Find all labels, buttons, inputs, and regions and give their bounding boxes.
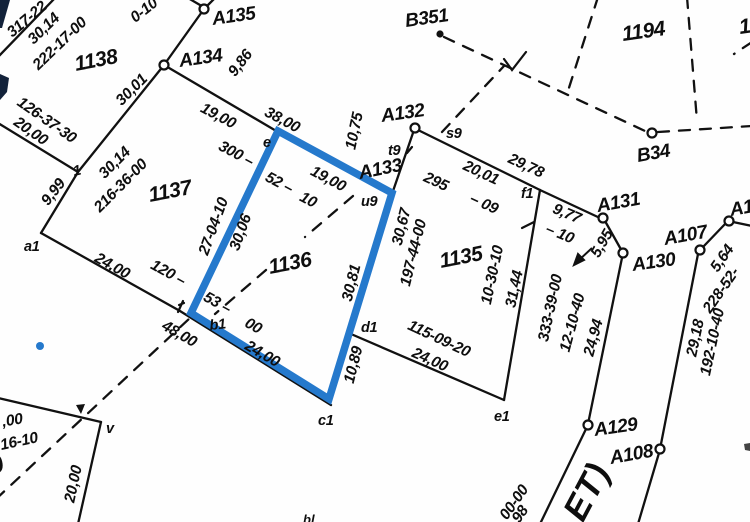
- svg-text:v: v: [106, 421, 115, 437]
- svg-text:A1: A1: [727, 196, 750, 221]
- svg-text:e: e: [263, 135, 271, 151]
- svg-text:,00: ,00: [0, 410, 24, 430]
- svg-text:u9: u9: [361, 194, 378, 210]
- svg-text:d1: d1: [361, 320, 378, 336]
- svg-text:t9: t9: [388, 143, 401, 159]
- svg-text:a1: a1: [24, 239, 40, 255]
- svg-text:b1: b1: [209, 316, 227, 334]
- svg-text:c1: c1: [318, 413, 334, 429]
- svg-text:s9: s9: [446, 126, 462, 142]
- svg-text:bl: bl: [303, 512, 315, 522]
- svg-text:1: 1: [737, 15, 750, 39]
- svg-text:e1: e1: [494, 409, 510, 425]
- svg-text:f1: f1: [521, 186, 534, 202]
